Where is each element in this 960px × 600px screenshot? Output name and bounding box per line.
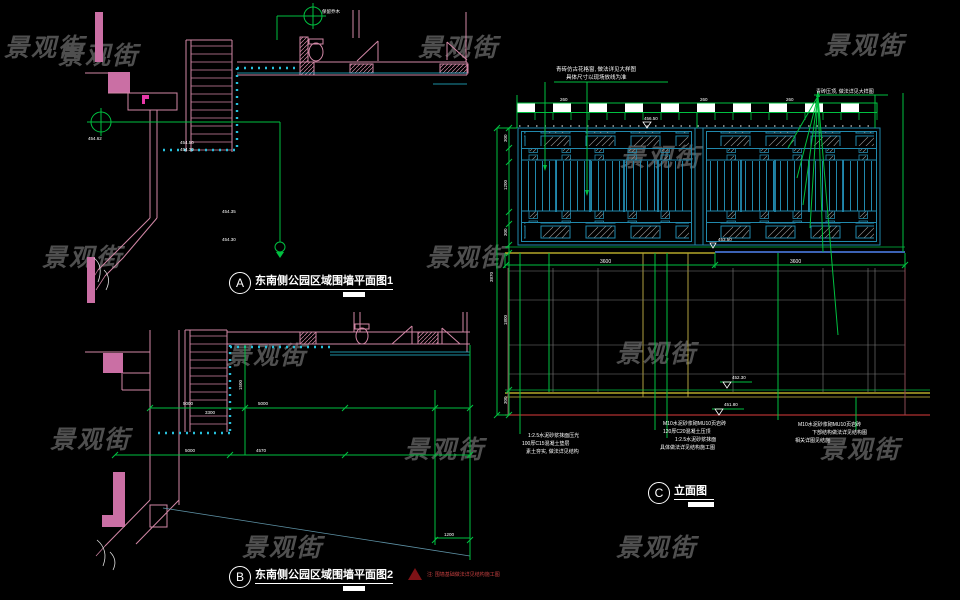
note-line: 素土夯实, 做法详见结构 (526, 448, 579, 455)
dim-label: 5000 (183, 401, 194, 406)
dim-label: 4570 (256, 448, 267, 453)
drawing-linework: 保留乔木 454.62 454.50 454.30 454.35 454.30 (0, 0, 960, 600)
elevation-title-bubble: C (648, 482, 670, 504)
dim-label: 3600 (790, 259, 801, 265)
note-line: 相关详图见结施 (795, 437, 830, 444)
dim-label: 5000 (258, 401, 269, 406)
datum-label: 454.62 (88, 136, 102, 141)
dim-label: 260 (700, 97, 708, 102)
plan2-title: B 东南侧公园区域围墙平面图2 (229, 566, 393, 591)
dim-label: 3870 (489, 271, 494, 282)
note-line: 120厚C20混凝土压顶 (663, 428, 711, 435)
plan1-scale-bar (343, 292, 365, 297)
note-line: 1:2.5水泥砂浆抹面压光 (528, 432, 579, 439)
dim-label: 3300 (205, 410, 216, 415)
dim-label: 1500 (238, 379, 243, 390)
elevation-scale-bar (688, 502, 714, 507)
dim-label: 3600 (600, 259, 611, 265)
plan-b-hidden-walls (158, 345, 470, 433)
plan1-title-text: 东南侧公园区域围墙平面图1 (255, 272, 393, 290)
plan-b-curb-line (163, 508, 470, 556)
elevation-datum-lines (505, 247, 930, 415)
plan2-title-text: 东南侧公园区域围墙平面图2 (255, 566, 393, 584)
plan-a-hidden-walls (163, 68, 467, 150)
dim-label: 300 (503, 134, 508, 142)
dim-label: 300 (503, 228, 508, 236)
dim-label: 260 (786, 97, 794, 102)
plan-b-labels: 5000 5000 5000 4570 3300 1500 1200 (183, 379, 455, 537)
level-label: 454.50 (180, 140, 194, 145)
plan1-title: A 东南侧公园区域围墙平面图1 (229, 272, 393, 297)
note-line: 青砖压顶, 做法详见大样图 (816, 88, 874, 95)
level-label: 454.30 (222, 237, 236, 242)
dim-label: 300 (503, 396, 508, 404)
plan-b-walls (85, 312, 470, 556)
level-label: 456.50 (644, 116, 658, 121)
dim-label: 1200 (503, 179, 508, 190)
plan-a-dimensions (87, 3, 326, 258)
level-label: 451.80 (724, 402, 738, 407)
plan1-title-bubble: A (229, 272, 251, 294)
plan-a-walls (85, 10, 468, 303)
warning-note-text: 注: 围墙基础做法详见结构施工图 (427, 571, 500, 578)
level-label: 452.30 (732, 375, 746, 380)
elevation-title: C 立面图 (648, 482, 714, 507)
note-line: M10水泥砂浆砌MU10页岩砖 (663, 420, 726, 427)
elevation-title-text: 立面图 (674, 482, 714, 500)
level-label: 454.35 (222, 209, 236, 214)
plan-b-dimensions (112, 345, 473, 560)
dim-label: 1800 (503, 314, 508, 325)
warning-triangle-icon (408, 568, 422, 580)
note-line: M10水泥砂浆砌MU10页岩砖 (798, 421, 861, 428)
dim-label: 5000 (185, 448, 196, 453)
note-line: 具体做法详见结构施工图 (660, 444, 715, 451)
plan2-scale-bar (343, 586, 365, 591)
note-line: 1:2.5水泥砂浆抹面 (675, 436, 716, 443)
level-label: 453.50 (718, 237, 732, 242)
dim-label: 260 (560, 97, 568, 102)
note-line: 100厚C15混凝土垫层 (522, 440, 570, 447)
cad-canvas: 景观街 景观街 景观街 景观街 景观街 景观街 景观街 景观街 景观街 景观街 … (0, 0, 960, 600)
plan2-title-bubble: B (229, 566, 251, 588)
tree-label: 保留乔木 (322, 8, 340, 15)
note-line: 具体尺寸以现场放线为准 (566, 73, 627, 81)
note-line: 下部结构做法详见结构图 (812, 429, 867, 436)
note-line: 青砖仿古花格窗, 做法详见大样图 (556, 65, 637, 73)
dim-label: 1200 (444, 532, 455, 537)
level-label: 454.30 (180, 147, 194, 152)
warning-note: 注: 围墙基础做法详见结构施工图 (408, 568, 500, 580)
